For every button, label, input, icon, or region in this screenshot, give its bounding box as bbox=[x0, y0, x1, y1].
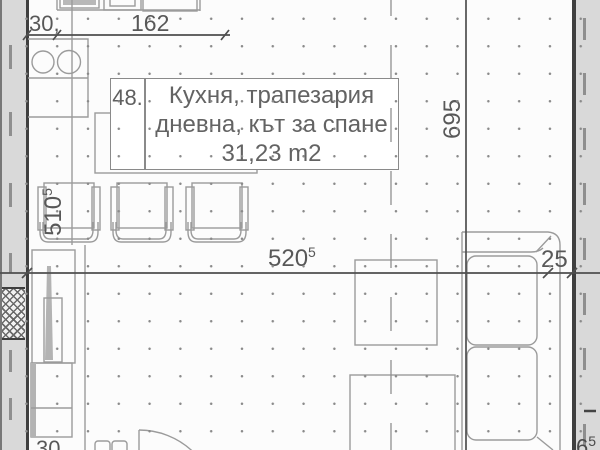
dimension-510-main: 510 bbox=[40, 196, 67, 236]
dimension-label-162: 162 bbox=[131, 10, 169, 37]
dimension-520-main: 520 bbox=[268, 245, 308, 272]
floor-plan-canvas: 48. Кухня, трапезария дневна, кът за спа… bbox=[0, 0, 600, 450]
dimension-ticks bbox=[22, 30, 577, 278]
dimension-label-520: 5205 bbox=[268, 244, 316, 273]
dimension-65-main: 6 bbox=[576, 434, 588, 450]
dimension-label-30: 30, bbox=[29, 11, 60, 37]
dimension-label-25: 25 bbox=[541, 246, 568, 274]
dimension-layer bbox=[0, 0, 600, 450]
dimension-label-30-bottom: 30 bbox=[36, 436, 60, 450]
dimension-label-65: 65 bbox=[576, 433, 596, 450]
dimension-65-sup: 5 bbox=[588, 433, 596, 449]
dimension-label-510: 5105 bbox=[39, 182, 65, 242]
dimension-510-sup: 5 bbox=[39, 188, 55, 196]
dimension-520-sup: 5 bbox=[308, 244, 316, 260]
dimension-label-695: 695 bbox=[439, 89, 465, 149]
